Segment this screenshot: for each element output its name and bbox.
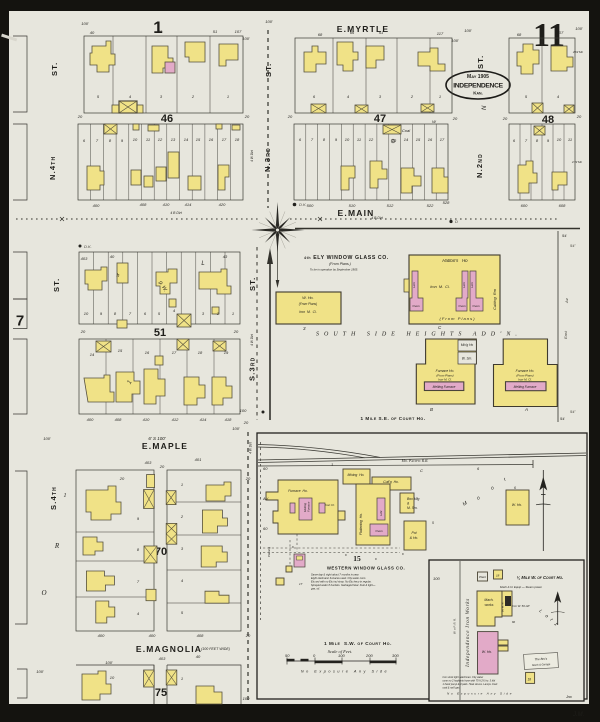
svg-text:Oven: Oven: [412, 304, 420, 308]
svg-text:11: 11: [146, 137, 150, 142]
svg-text:1: 1: [232, 311, 234, 316]
svg-text:12: 12: [369, 137, 374, 142]
svg-text:Lehr: Lehr: [412, 281, 416, 288]
svg-text:INDEPENDENCE: INDEPENDENCE: [453, 83, 503, 90]
svg-text:10: 10: [84, 311, 89, 316]
svg-text:Hatton's Ho: Hatton's Ho: [442, 258, 468, 263]
svg-text:Furnace: Furnace: [307, 501, 311, 512]
svg-text:Av.: Av.: [564, 297, 569, 304]
svg-text:4 W Dirt: 4 W Dirt: [250, 334, 254, 346]
svg-text:L: L: [201, 261, 204, 267]
svg-text:Oven: Oven: [472, 304, 480, 308]
svg-text:17: 17: [222, 137, 227, 142]
svg-text:410: 410: [143, 417, 150, 422]
svg-text:6: 6: [514, 486, 516, 490]
svg-text:15: 15: [118, 348, 123, 353]
svg-text:20: 20: [159, 464, 165, 469]
svg-text:E.MAGNOLIA: E.MAGNOLIA: [136, 644, 202, 654]
svg-text:100: 100: [338, 653, 345, 658]
svg-text:ST.: ST.: [50, 62, 59, 76]
svg-text:20: 20: [243, 420, 249, 425]
svg-text:408: 408: [197, 633, 204, 638]
svg-text:100': 100': [265, 19, 273, 24]
svg-text:( F r o m P l a n s ): ( F r o m P l a n s ): [439, 316, 475, 321]
svg-text:Iron M. Cl.: Iron M. Cl.: [430, 285, 450, 289]
svg-text:Oven: Oven: [458, 304, 466, 308]
svg-text:401: 401: [195, 457, 202, 462]
svg-text:100': 100': [464, 28, 472, 33]
svg-text:11: 11: [568, 137, 572, 142]
svg-text:Eight Hartmann furnaces used.: Eight Hartmann furnaces used. City water…: [311, 576, 366, 580]
svg-text:Furnace Ho.: Furnace Ho.: [288, 489, 308, 493]
svg-text:11: 11: [357, 137, 361, 142]
svg-text:47: 47: [374, 113, 386, 125]
svg-text:14: 14: [90, 352, 95, 357]
svg-text:20: 20: [245, 633, 251, 638]
svg-text:66: 66: [350, 30, 355, 35]
svg-text:60: 60: [263, 526, 268, 531]
svg-text:20: 20: [576, 114, 582, 119]
svg-text:To be in operation by Septembe: To be in operation by September 1905.: [310, 268, 358, 272]
svg-text:1 MILE S.E. OF COURT HO.: 1 MILE S.E. OF COURT HO.: [361, 416, 426, 421]
svg-text:412: 412: [172, 417, 179, 422]
svg-text:403: 403: [145, 460, 152, 465]
svg-text:100': 100': [36, 669, 44, 674]
svg-text:4 B Dirt: 4 B Dirt: [170, 211, 182, 215]
svg-text:1: 1: [64, 493, 67, 499]
svg-text:SOUTH SIDE HEIGHTS ADD'N.: SOUTH SIDE HEIGHTS ADD'N.: [316, 332, 522, 338]
svg-text:4 W Dirt: 4 W Dirt: [250, 150, 254, 162]
svg-text:Iron Cl.: Iron Cl.: [325, 503, 335, 507]
svg-text:418: 418: [225, 417, 232, 422]
svg-text:16: 16: [428, 137, 433, 142]
svg-text:A: A: [524, 407, 528, 412]
svg-text:408: 408: [140, 202, 147, 207]
svg-text:20: 20: [502, 116, 508, 121]
svg-text:ST.: ST.: [248, 277, 257, 291]
svg-text:ST.: ST.: [52, 278, 61, 292]
svg-text:50: 50: [285, 653, 290, 658]
svg-text:500: 500: [307, 203, 314, 208]
svg-text:14: 14: [404, 137, 409, 142]
svg-text:100: 100: [240, 408, 247, 413]
svg-text:Mach.: Mach.: [484, 598, 493, 602]
svg-text:M. Sm.: M. Sm.: [407, 506, 418, 510]
svg-text:Iron M. Cl.: Iron M. Cl.: [518, 378, 532, 382]
svg-text:17: 17: [440, 137, 445, 142]
svg-text:420: 420: [219, 202, 226, 207]
svg-text:1: 1: [181, 676, 183, 681]
svg-text:1: 1: [153, 18, 162, 37]
svg-text:10: 10: [133, 137, 138, 142]
svg-text:54: 54: [560, 416, 565, 421]
svg-text:522: 522: [427, 203, 434, 208]
svg-text:E.MAIN: E.MAIN: [338, 208, 375, 218]
svg-text:18: 18: [496, 574, 500, 578]
svg-text:5: 5: [432, 521, 434, 525]
svg-text:W. Ho.: W. Ho.: [482, 650, 492, 654]
svg-text:4th ELY WINDOW GLASS CO.: 4th ELY WINDOW GLASS CO.: [304, 255, 389, 261]
svg-text:17: 17: [299, 582, 303, 586]
svg-text:13: 13: [171, 137, 176, 142]
svg-text:Flattening Ho.: Flattening Ho.: [359, 513, 363, 535]
svg-text:100': 100': [105, 660, 113, 665]
svg-text:100': 100': [232, 426, 240, 431]
svg-text:1 MILE S.W. OF COURT HO.: 1 MILE S.W. OF COURT HO.: [324, 641, 392, 646]
svg-text:10: 10: [557, 137, 562, 142]
svg-text:W. Ho.: W. Ho.: [302, 296, 313, 300]
svg-text:414: 414: [200, 417, 207, 422]
svg-text:Lehr: Lehr: [470, 281, 474, 288]
svg-text:4 B Dirt: 4 B Dirt: [371, 216, 383, 220]
svg-text:& Ho.: & Ho.: [410, 536, 419, 540]
svg-text:15: 15: [416, 137, 421, 142]
svg-text:¼ MILE W. OF COURT HO.: ¼ MILE W. OF COURT HO.: [517, 575, 563, 580]
svg-text:(From Plans): (From Plans): [299, 302, 317, 306]
svg-text:100: 100: [433, 576, 440, 581]
svg-text:512: 512: [387, 203, 394, 208]
svg-text:W. Ho.: W. Ho.: [512, 503, 522, 507]
svg-text:Etc wol with no Etc incl stmp.: Etc wol with no Etc incl stmp. No Etc he…: [311, 580, 372, 584]
svg-text:East: East: [563, 330, 568, 339]
svg-text:Cutl'g Ho.: Cutl'g Ho.: [383, 480, 399, 484]
svg-text:20: 20: [80, 329, 86, 334]
svg-text:608: 608: [559, 203, 566, 208]
svg-text:N: N: [482, 105, 488, 110]
svg-text:20: 20: [119, 476, 125, 481]
svg-text:16: 16: [209, 137, 214, 142]
svg-text:D.K.: D.K.: [84, 244, 92, 249]
svg-text:Oven: Oven: [375, 529, 383, 533]
svg-text:200: 200: [365, 653, 373, 658]
svg-text:100': 100': [242, 36, 250, 41]
svg-text:60: 60: [512, 620, 516, 624]
svg-text:17: 17: [172, 350, 177, 355]
svg-text:7: 7: [16, 313, 24, 330]
svg-text:WESTERN WINDOW GLASS CO.: WESTERN WINDOW GLASS CO.: [327, 566, 405, 571]
svg-text:510: 510: [349, 203, 356, 208]
svg-text:Lehr: Lehr: [462, 281, 466, 288]
svg-text:D.K.: D.K.: [299, 202, 307, 207]
svg-text:4 W Mn: 4 W Mn: [572, 160, 583, 164]
svg-text:W. o P. R. R.: W. o P. R. R.: [453, 618, 457, 634]
svg-text:Melting Furnace: Melting Furnace: [514, 385, 537, 389]
svg-text:KAN.: KAN.: [473, 91, 483, 96]
svg-text:60: 60: [263, 466, 268, 471]
svg-text:400: 400: [87, 417, 94, 422]
svg-text:18: 18: [235, 137, 240, 142]
svg-text:(From Plans.): (From Plans.): [329, 262, 351, 266]
svg-text:63: 63: [158, 29, 163, 34]
svg-text:403: 403: [159, 656, 166, 661]
svg-text:10: 10: [110, 675, 115, 680]
svg-text:ST.: ST.: [476, 55, 485, 69]
svg-text:19: 19: [224, 350, 229, 355]
svg-text:18: 18: [198, 350, 203, 355]
svg-text:Box Mfg: Box Mfg: [407, 497, 420, 501]
svg-text:No Exposure Any Side: No Exposure Any Side: [301, 670, 389, 674]
svg-text:20: 20: [287, 114, 293, 119]
svg-text:100: 100: [243, 696, 250, 701]
svg-text:408: 408: [115, 417, 122, 422]
svg-text:117: 117: [437, 31, 444, 36]
svg-text:107: 107: [557, 30, 564, 35]
svg-text:B: B: [430, 407, 433, 412]
svg-text:Mixing Ho.: Mixing Ho.: [348, 473, 365, 477]
svg-text:Melting Furnace: Melting Furnace: [433, 385, 456, 389]
svg-text:1: 1: [181, 482, 183, 487]
svg-text:12: 12: [158, 137, 163, 142]
svg-text:4 W Mn: 4 W Mn: [573, 50, 584, 54]
svg-text:18: 18: [528, 678, 532, 682]
svg-text:75: 75: [155, 687, 167, 699]
svg-text:68: 68: [318, 32, 323, 37]
svg-text:528: 528: [443, 200, 450, 205]
svg-text:gas, oil.: gas, oil.: [311, 587, 320, 591]
svg-text:Mix'g Ho: Mix'g Ho: [461, 343, 474, 347]
svg-text:works: works: [485, 603, 494, 607]
svg-text:MO. PACIFIC R.R.: MO. PACIFIC R.R.: [401, 459, 429, 463]
svg-text:100': 100': [43, 436, 51, 441]
svg-text:Iron M. Cl.: Iron M. Cl.: [438, 378, 452, 382]
svg-text:54': 54': [570, 409, 575, 414]
svg-text:Cutting Rm: Cutting Rm: [492, 288, 497, 310]
svg-text:Coal: Coal: [402, 128, 410, 133]
svg-text:300: 300: [392, 653, 399, 658]
svg-text:20: 20: [452, 116, 458, 121]
svg-text:Furnace Ho.: Furnace Ho.: [436, 369, 455, 373]
svg-text:10: 10: [345, 137, 350, 142]
svg-text:1: 1: [331, 462, 333, 467]
svg-text:AV.: AV.: [262, 496, 269, 501]
svg-text:coal & nat'l gas.: coal & nat'l gas.: [443, 687, 461, 690]
svg-text:No Exposure Any Side: No Exposure Any Side: [447, 692, 513, 696]
svg-text:100': 100': [81, 21, 89, 26]
svg-text:68: 68: [517, 32, 522, 37]
svg-text:C: C: [420, 468, 423, 473]
svg-text:20: 20: [77, 114, 83, 119]
svg-text:51: 51: [213, 29, 217, 34]
svg-text:MAY 1905: MAY 1905: [467, 74, 489, 80]
svg-text:51: 51: [154, 327, 166, 339]
svg-text:54': 54': [570, 243, 575, 248]
svg-text:14: 14: [184, 137, 189, 142]
svg-text:15: 15: [196, 137, 201, 142]
svg-text:E.MAPLE: E.MAPLE: [142, 441, 188, 451]
svg-text:51: 51: [379, 30, 383, 35]
svg-text:(100 FEET WIDE): (100 FEET WIDE): [201, 647, 230, 651]
svg-text:6' S 100': 6' S 100': [148, 436, 165, 441]
svg-text:1: 1: [227, 94, 229, 99]
svg-text:Jno: Jno: [565, 695, 572, 699]
svg-text:400: 400: [98, 633, 105, 638]
svg-text:1: 1: [439, 94, 441, 99]
svg-text:4 W Dirt: 4 W Dirt: [249, 442, 253, 454]
svg-text:46: 46: [161, 113, 173, 125]
svg-text:15: 15: [353, 554, 361, 563]
svg-text:Mach & bl. Equip — Steam power: Mach & bl. Equip — Steam power: [500, 585, 543, 589]
svg-text:The Bro's: The Bro's: [534, 657, 547, 662]
svg-text:Plant: Plant: [479, 575, 486, 579]
svg-text:100': 100': [451, 38, 459, 43]
svg-text:Furnace Ho.: Furnace Ho.: [516, 369, 535, 373]
svg-text:410: 410: [163, 202, 170, 207]
svg-text:Sprayed water 8 buckets. Garba: Sprayed water 8 buckets. Garbaged heat. …: [311, 583, 376, 587]
svg-text:h: h: [117, 273, 120, 279]
svg-text:O: O: [41, 589, 46, 597]
svg-text:40: 40: [110, 254, 115, 259]
svg-text:414: 414: [185, 202, 192, 207]
svg-text:54: 54: [562, 233, 567, 238]
svg-text:40: 40: [196, 654, 201, 659]
svg-text:400: 400: [93, 203, 100, 208]
svg-text:Iron W. 50 HP: Iron W. 50 HP: [512, 604, 530, 608]
svg-text:Iro W. M.: Iro W. M.: [501, 601, 505, 612]
svg-text:403: 403: [81, 256, 88, 261]
svg-text:20: 20: [244, 114, 250, 119]
svg-text:400: 400: [149, 633, 156, 638]
svg-text:40: 40: [90, 30, 95, 35]
svg-text:conn no 2 hydrants hose with 7: conn no 2 hydrants hose with 75 ft 2½ ho…: [443, 679, 496, 683]
svg-text:20: 20: [233, 329, 239, 334]
svg-text:Bl. Sm.: Bl. Sm.: [462, 357, 472, 361]
svg-text:107: 107: [235, 29, 242, 34]
svg-text:Iron M. Cl.: Iron M. Cl.: [299, 310, 317, 314]
svg-text:D: D: [455, 219, 458, 224]
svg-text:Independence Iron Works: Independence Iron Works: [465, 598, 471, 668]
svg-text:R: R: [54, 542, 60, 550]
svg-text:16: 16: [145, 350, 150, 355]
svg-text:ST.: ST.: [264, 63, 273, 77]
svg-text:600: 600: [521, 203, 528, 208]
svg-text:J.M.: J.M.: [572, 712, 584, 718]
svg-text:Same day & night about 7 month: Same day & night about 7 months in year.: [311, 573, 359, 577]
svg-text:43: 43: [223, 254, 228, 259]
svg-text:20: 20: [245, 476, 251, 481]
svg-text:100': 100': [575, 26, 583, 31]
